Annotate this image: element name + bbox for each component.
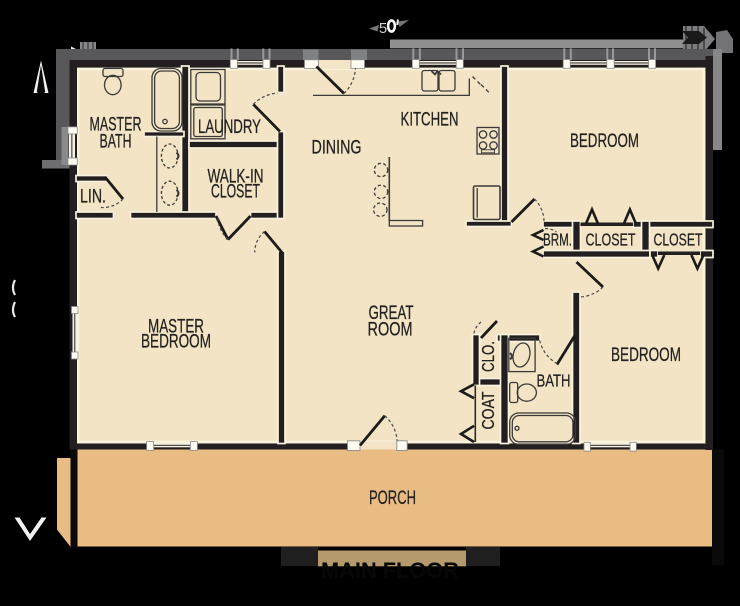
svg-text:DINING: DINING bbox=[312, 138, 362, 159]
svg-text:BEDROOM: BEDROOM bbox=[611, 345, 681, 366]
svg-text:BEDROOM: BEDROOM bbox=[141, 332, 211, 353]
svg-text:ROOM: ROOM bbox=[368, 320, 413, 341]
svg-text:BATH: BATH bbox=[537, 371, 571, 391]
svg-text:KITCHEN: KITCHEN bbox=[401, 110, 459, 131]
svg-text:BRM.: BRM. bbox=[543, 230, 572, 250]
svg-text:CLOSET: CLOSET bbox=[586, 230, 636, 250]
svg-text:CLO.: CLO. bbox=[478, 341, 498, 372]
svg-text:BEDROOM: BEDROOM bbox=[570, 131, 639, 152]
svg-text:COAT: COAT bbox=[478, 391, 498, 429]
svg-text:LAUNDRY: LAUNDRY bbox=[198, 117, 261, 138]
svg-text:CLOSET: CLOSET bbox=[654, 230, 703, 250]
svg-text:LIN.: LIN. bbox=[80, 187, 106, 208]
svg-text:MAIN FLOOR: MAIN FLOOR bbox=[321, 558, 459, 583]
svg-text:PORCH: PORCH bbox=[369, 487, 416, 509]
svg-text:5: 5 bbox=[379, 20, 387, 37]
svg-text:BATH: BATH bbox=[100, 132, 132, 153]
svg-text:CLOSET: CLOSET bbox=[211, 182, 260, 203]
